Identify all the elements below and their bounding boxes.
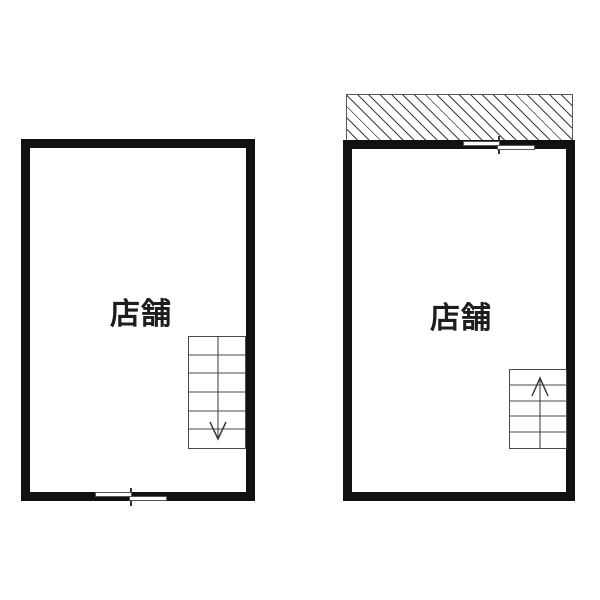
staircase-up (509, 369, 567, 449)
room-right-label: 店舗 (430, 304, 492, 334)
staircase-down (188, 336, 246, 449)
window-pane (497, 145, 535, 150)
sliding-window-top (463, 136, 535, 154)
sliding-door-bottom (95, 488, 167, 506)
window-pane (129, 496, 167, 501)
window-pane (95, 492, 132, 497)
floorplan-canvas: 店舗 店舗 (0, 0, 600, 600)
hatched-area (346, 94, 573, 141)
window-pane (463, 141, 500, 146)
room-left-label: 店舗 (110, 300, 172, 330)
